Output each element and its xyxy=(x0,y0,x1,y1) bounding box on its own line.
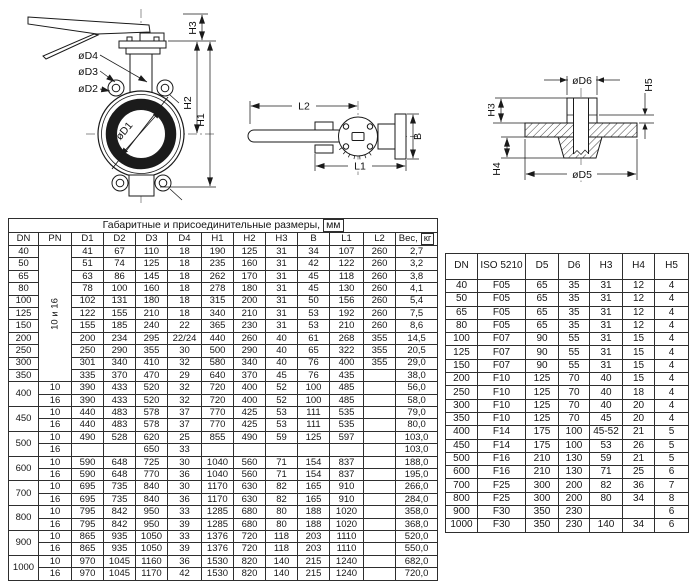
table-cell: 185 xyxy=(104,320,136,332)
table-cell: 16 xyxy=(39,394,72,406)
table-cell: 1170 xyxy=(202,481,234,493)
table-cell: 30 xyxy=(168,345,202,357)
front-view-drawing: øD1 øD4 øD3 øD2 H3 xyxy=(2,3,237,215)
table-cell: 154 xyxy=(298,469,330,481)
table-cell: 10 xyxy=(39,407,72,419)
table-cell: 65 xyxy=(446,306,478,319)
table-cell: 80 xyxy=(590,492,623,505)
table-cell: 90 xyxy=(526,333,559,346)
table-cell: 355 xyxy=(364,332,396,344)
table-cell: 170 xyxy=(234,270,266,282)
table-cell: 720 xyxy=(234,543,266,555)
table-cell: 935 xyxy=(104,530,136,542)
table-row: DNPND1D2D3D4H1H2H3BL1L2Вес,кг xyxy=(9,233,438,246)
table-cell: 20,5 xyxy=(396,345,438,357)
table-cell xyxy=(364,481,396,493)
table-cell: 483 xyxy=(104,407,136,419)
table-cell: 340 xyxy=(104,357,136,369)
table-cell: F05 xyxy=(478,293,526,306)
table-cell: 53 xyxy=(266,419,298,431)
table-cell: 735 xyxy=(104,493,136,505)
table-cell: 188 xyxy=(298,518,330,530)
table-cell: 842 xyxy=(104,518,136,530)
table-cell: 300 xyxy=(526,479,559,492)
table-cell: 130 xyxy=(330,283,364,295)
table-cell: 590 xyxy=(72,469,104,481)
table-cell: 65 xyxy=(526,280,559,293)
column-header: PN xyxy=(39,233,72,246)
table-cell: 10 xyxy=(39,555,72,567)
table-row: 1659064877036104056071154837195,0 xyxy=(9,469,438,481)
table-cell: 340 xyxy=(202,307,234,319)
table-cell: 80 xyxy=(446,319,478,332)
table-cell: 14,5 xyxy=(396,332,438,344)
table-cell: 210 xyxy=(234,307,266,319)
table-cell: 770 xyxy=(202,407,234,419)
table-cell: 25 xyxy=(623,466,655,479)
iso-table-container: DNISO 5210D5D6H3H4H540F0565353112450F056… xyxy=(445,253,689,533)
column-header: DN xyxy=(9,233,39,246)
table-cell: 175 xyxy=(526,426,559,439)
table-cell: 1045 xyxy=(104,555,136,567)
dn-cell: 300 xyxy=(9,357,39,369)
table-cell: 284,0 xyxy=(396,493,438,505)
table-cell: 55 xyxy=(559,346,590,359)
table-row: 6001059064872530104056071154837188,0 xyxy=(9,456,438,468)
table-cell: 910 xyxy=(330,481,364,493)
table-cell: 210 xyxy=(136,307,168,319)
table-row: 20020023429522/24440260406126835514,5 xyxy=(9,332,438,344)
table-cell: 31 xyxy=(590,333,623,346)
table-cell: 36 xyxy=(168,469,202,481)
table-cell: 122 xyxy=(72,307,104,319)
table-cell: 4 xyxy=(655,359,689,372)
table-row: 16440483578377704255311153580,0 xyxy=(9,419,438,431)
table-cell: 140 xyxy=(266,568,298,580)
unit-box: мм xyxy=(323,219,343,232)
table-row: 6563861451826217031451182603,8 xyxy=(9,270,438,282)
table-cell: 12 xyxy=(623,280,655,293)
column-header: D5 xyxy=(526,254,559,280)
table-cell xyxy=(364,518,396,530)
table-cell: 32 xyxy=(168,394,202,406)
table-cell: 4 xyxy=(655,386,689,399)
valve-body xyxy=(98,80,184,200)
table-row: 100010970104511603615308201402151240682,… xyxy=(9,555,438,567)
table-cell: 18 xyxy=(168,258,202,270)
table-cell: 82 xyxy=(590,479,623,492)
table-cell: 840 xyxy=(136,493,168,505)
dn-cell: 800 xyxy=(9,506,39,531)
table-cell: 140 xyxy=(590,519,623,532)
table-row: 1001021311801831520031501562605,4 xyxy=(9,295,438,307)
table-cell: 950 xyxy=(136,518,168,530)
table-cell: 18 xyxy=(168,307,202,319)
dim-l2: L2 xyxy=(250,100,357,125)
table-cell: 40 xyxy=(446,280,478,293)
table-cell: 300 xyxy=(446,399,478,412)
dn-cell: 40 xyxy=(9,245,39,257)
table-cell: 970 xyxy=(72,568,104,580)
table-cell: 102 xyxy=(72,295,104,307)
table-cell xyxy=(298,444,330,456)
table-cell: 500 xyxy=(202,345,234,357)
table-cell: F10 xyxy=(478,386,526,399)
table-cell: 260 xyxy=(364,258,396,270)
table-cell: 35 xyxy=(559,293,590,306)
table-cell: 840 xyxy=(136,481,168,493)
table-cell: 16 xyxy=(39,493,72,505)
column-header: H4 xyxy=(623,254,655,280)
table-cell: 528 xyxy=(104,431,136,443)
table-cell: F05 xyxy=(478,319,526,332)
table-cell: 70 xyxy=(559,399,590,412)
table-cell: 31 xyxy=(266,283,298,295)
table-cell: 36 xyxy=(168,493,202,505)
table-cell: 1110 xyxy=(330,543,364,555)
table-cell: 260 xyxy=(364,320,396,332)
main-dimensions-table-container: Габаритные и присоединительные размеры,м… xyxy=(8,218,438,581)
table-cell: 100 xyxy=(298,394,330,406)
table-cell: 400 xyxy=(446,426,478,439)
dn-cell: 150 xyxy=(9,320,39,332)
header-label: Габаритные и присоединительные размеры, xyxy=(103,219,320,231)
dn-cell: 80 xyxy=(9,283,39,295)
table-cell: 350 xyxy=(526,506,559,519)
table-cell: F30 xyxy=(478,506,526,519)
table-cell: 210 xyxy=(330,320,364,332)
table-cell: F25 xyxy=(478,479,526,492)
table-row: 150F07905531154 xyxy=(446,359,689,372)
table-row: 800F2530020080348 xyxy=(446,492,689,505)
table-cell: 40 xyxy=(590,399,623,412)
table-cell: 175 xyxy=(526,439,559,452)
table-row: 80F05653531124 xyxy=(446,319,689,332)
table-cell: 10 xyxy=(39,382,72,394)
table-cell: 90 xyxy=(526,346,559,359)
table-cell: 90 xyxy=(526,359,559,372)
table-cell: 100 xyxy=(559,426,590,439)
table-row: 900F303502306 xyxy=(446,506,689,519)
table-cell: F16 xyxy=(478,466,526,479)
table-cell: 4 xyxy=(655,399,689,412)
table-cell: 234 xyxy=(104,332,136,344)
table-cell: 1170 xyxy=(136,568,168,580)
table-cell: 370 xyxy=(234,369,266,381)
table-cell: 770 xyxy=(202,419,234,431)
table-cell: 680 xyxy=(234,506,266,518)
table-cell: 29 xyxy=(168,369,202,381)
table-cell: F14 xyxy=(478,426,526,439)
column-header: H1 xyxy=(202,233,234,246)
table-cell: 20 xyxy=(623,412,655,425)
table-row: 16390433520327204005210048558,0 xyxy=(9,394,438,406)
table-cell xyxy=(364,543,396,555)
table-cell: 118 xyxy=(266,543,298,555)
table-cell: 111 xyxy=(298,419,330,431)
table-cell: 650 xyxy=(136,444,168,456)
table-cell: 260 xyxy=(364,245,396,257)
table-cell: 250 xyxy=(446,386,478,399)
table-cell: 56,0 xyxy=(396,382,438,394)
table-cell: 578 xyxy=(136,407,168,419)
table-cell: 7,5 xyxy=(396,307,438,319)
table-row: 16970104511704215308201402151240720,0 xyxy=(9,568,438,580)
table-cell: 2,7 xyxy=(396,245,438,257)
table-cell: 131 xyxy=(104,295,136,307)
table-cell: 390 xyxy=(72,394,104,406)
table-cell: 59 xyxy=(590,452,623,465)
dim-label-h1: H1 xyxy=(195,113,207,127)
main-table: Габаритные и присоединительные размеры,м… xyxy=(8,218,438,581)
table-cell: 67 xyxy=(104,245,136,257)
table-row: 300F101257040204 xyxy=(446,399,689,412)
table-cell: 16 xyxy=(39,419,72,431)
table-cell: 4 xyxy=(655,346,689,359)
table-cell: 165 xyxy=(298,481,330,493)
table-cell: 260 xyxy=(364,295,396,307)
dim-label-h4: H4 xyxy=(491,162,503,176)
table-cell: 21 xyxy=(623,452,655,465)
table-cell: 6 xyxy=(655,466,689,479)
table-cell: 865 xyxy=(72,530,104,542)
table-cell: 100 xyxy=(446,333,478,346)
table-row: 25025029035530500290406532235520,5 xyxy=(9,345,438,357)
column-header: H3 xyxy=(266,233,298,246)
table-row: 500104905286202585549059125597103,0 xyxy=(9,431,438,443)
table-cell: 1376 xyxy=(202,543,234,555)
flange-section-svg: øD6 H5 H3 xyxy=(488,40,700,190)
table-cell: 578 xyxy=(136,419,168,431)
table-cell: 855 xyxy=(202,431,234,443)
table-cell: 15 xyxy=(623,373,655,386)
table-cell: 440 xyxy=(202,332,234,344)
table-cell: 40 xyxy=(266,357,298,369)
table-cell: 10 xyxy=(39,431,72,443)
table-cell: 10 xyxy=(39,456,72,468)
table-cell: 8,6 xyxy=(396,320,438,332)
table-cell: 290 xyxy=(234,345,266,357)
table-cell: F05 xyxy=(478,306,526,319)
table-cell: 470 xyxy=(136,369,168,381)
table-row: 9001086593510503313767201182031110520,0 xyxy=(9,530,438,542)
table-cell: 358,0 xyxy=(396,506,438,518)
dn-cell: 500 xyxy=(9,431,39,456)
table-cell: 37 xyxy=(168,407,202,419)
table-cell: 35 xyxy=(559,280,590,293)
table-cell: 535 xyxy=(330,419,364,431)
table-cell: 31 xyxy=(590,306,623,319)
table-cell: 648 xyxy=(104,469,136,481)
table-cell: 41 xyxy=(72,245,104,257)
table-cell: 335 xyxy=(72,369,104,381)
table-row: 500F1621013059215 xyxy=(446,452,689,465)
table-cell: 8 xyxy=(655,492,689,505)
table-cell: F10 xyxy=(478,373,526,386)
table-cell: 355 xyxy=(136,345,168,357)
table-cell: 215 xyxy=(298,555,330,567)
table-cell: 55 xyxy=(559,333,590,346)
table-cell: 215 xyxy=(298,568,330,580)
column-header: D1 xyxy=(72,233,104,246)
table-cell: 45-52 xyxy=(590,426,623,439)
table-cell: 1050 xyxy=(136,530,168,542)
table-cell: 370 xyxy=(104,369,136,381)
dim-label-h2: H2 xyxy=(182,96,194,110)
table-cell: 400 xyxy=(234,394,266,406)
table-cell: 22 xyxy=(168,320,202,332)
table-cell: 6 xyxy=(655,506,689,519)
table-cell: 770 xyxy=(136,469,168,481)
table-cell: 520 xyxy=(136,394,168,406)
table-cell: 31 xyxy=(590,293,623,306)
table-cell: 78 xyxy=(72,283,104,295)
table-cell: 76 xyxy=(298,357,330,369)
table-cell: 18 xyxy=(168,245,202,257)
table-cell: 5 xyxy=(655,452,689,465)
table-cell xyxy=(364,456,396,468)
table-cell: 188 xyxy=(298,506,330,518)
table-cell: 18 xyxy=(168,270,202,282)
column-header: ISO 5210 xyxy=(478,254,526,280)
table-cell xyxy=(364,493,396,505)
table-cell: 192 xyxy=(330,307,364,319)
table-cell: 648 xyxy=(104,456,136,468)
table-cell: 125 xyxy=(526,373,559,386)
table-cell: 22/24 xyxy=(168,332,202,344)
table-cell: 535 xyxy=(330,407,364,419)
table-cell: 440 xyxy=(72,407,104,419)
table-cell: 200 xyxy=(446,373,478,386)
table-row: 80781001601827818031451302604,1 xyxy=(9,283,438,295)
table-cell: 597 xyxy=(330,431,364,443)
table-cell: 340 xyxy=(234,357,266,369)
table-cell xyxy=(104,444,136,456)
dim-label-d6: øD6 xyxy=(572,75,592,87)
table-row: 350F101257045204 xyxy=(446,412,689,425)
table-cell: 7 xyxy=(655,479,689,492)
table-cell: F07 xyxy=(478,333,526,346)
body-side-profile xyxy=(378,114,406,159)
table-cell: 10 xyxy=(39,530,72,542)
table-cell: 720,0 xyxy=(396,568,438,580)
iso-table: DNISO 5210D5D6H3H4H540F0565353112450F056… xyxy=(445,253,689,533)
table-cell: 35 xyxy=(559,319,590,332)
table-cell: 1050 xyxy=(136,543,168,555)
table-cell: 125 xyxy=(298,431,330,443)
table-cell: 12 xyxy=(623,306,655,319)
table-cell: 31 xyxy=(266,270,298,282)
table-cell: 18 xyxy=(168,283,202,295)
pn-merged-cell: 10 и 16 xyxy=(39,245,72,381)
dim-h4: H4 xyxy=(491,137,564,176)
table-cell: 10 xyxy=(39,506,72,518)
table-cell: 45 xyxy=(298,270,330,282)
table-cell: 82 xyxy=(266,481,298,493)
dn-cell: 900 xyxy=(9,530,39,555)
unit-box: кг xyxy=(421,233,435,245)
table-cell: 16 xyxy=(39,518,72,530)
table-cell: 80 xyxy=(266,518,298,530)
table-row: 400F1417510045-52215 xyxy=(446,426,689,439)
table-cell: 680 xyxy=(234,518,266,530)
table-cell: 6 xyxy=(655,519,689,532)
table-cell xyxy=(364,469,396,481)
table-row: 5051741251823516031421222603,2 xyxy=(9,258,438,270)
table-cell: 483 xyxy=(104,419,136,431)
table-row: DNISO 5210D5D6H3H4H5 xyxy=(446,254,689,280)
table-row: 450F1417510053265 xyxy=(446,439,689,452)
table-cell: 700 xyxy=(446,479,478,492)
table-cell: 31 xyxy=(266,320,298,332)
table-cell: 50 xyxy=(298,295,330,307)
dn-cell: 1000 xyxy=(9,555,39,580)
table-cell: 600 xyxy=(446,466,478,479)
table-cell: 130 xyxy=(559,466,590,479)
column-header: B xyxy=(298,233,330,246)
table-cell: 188,0 xyxy=(396,456,438,468)
table-cell: 52 xyxy=(266,394,298,406)
dim-h3: H3 xyxy=(488,98,567,123)
table-cell: 111 xyxy=(298,407,330,419)
table-cell: 103,0 xyxy=(396,431,438,443)
table-cell: 156 xyxy=(330,295,364,307)
table-cell: 16 xyxy=(39,568,72,580)
table-cell: 4 xyxy=(655,333,689,346)
dn-cell: 350 xyxy=(9,369,39,381)
table-cell: 560 xyxy=(234,469,266,481)
table-cell: 100 xyxy=(104,283,136,295)
dn-cell: 65 xyxy=(9,270,39,282)
table-cell: 35 xyxy=(559,306,590,319)
table-cell: 1000 xyxy=(446,519,478,532)
dn-cell: 200 xyxy=(9,332,39,344)
table-cell: 150 xyxy=(446,359,478,372)
table-cell: 5 xyxy=(655,439,689,452)
table-cell: 725 xyxy=(136,456,168,468)
table-cell: 118 xyxy=(266,530,298,542)
table-cell: 250 xyxy=(72,345,104,357)
table-cell xyxy=(330,444,364,456)
dim-label-d4: øD4 xyxy=(78,50,98,62)
table-row: 200F101257040154 xyxy=(446,373,689,386)
table-row: 1000F30350230140346 xyxy=(446,519,689,532)
table-cell: 33 xyxy=(168,444,202,456)
flange-plate-section xyxy=(525,98,637,158)
table-cell: 53 xyxy=(590,439,623,452)
table-cell: 107 xyxy=(330,245,364,257)
table-cell: F10 xyxy=(478,412,526,425)
table-cell: 433 xyxy=(104,394,136,406)
dn-cell: 600 xyxy=(9,456,39,481)
dim-label-l2: L2 xyxy=(298,101,310,113)
table-cell: 12 xyxy=(623,319,655,332)
table-cell: 350 xyxy=(526,519,559,532)
table-cell xyxy=(590,506,623,519)
table-cell: 71 xyxy=(266,469,298,481)
table-cell: 266,0 xyxy=(396,481,438,493)
table-cell: 520,0 xyxy=(396,530,438,542)
table-cell: 3,2 xyxy=(396,258,438,270)
table-cell: 31 xyxy=(266,295,298,307)
table-row: 16795842950391285680801881020368,0 xyxy=(9,518,438,530)
table-cell: 26 xyxy=(623,439,655,452)
table-cell: 30 xyxy=(168,481,202,493)
table-cell: 720 xyxy=(202,394,234,406)
stem-square xyxy=(352,133,364,141)
table-cell: 70 xyxy=(559,386,590,399)
table-cell: 40 xyxy=(266,345,298,357)
